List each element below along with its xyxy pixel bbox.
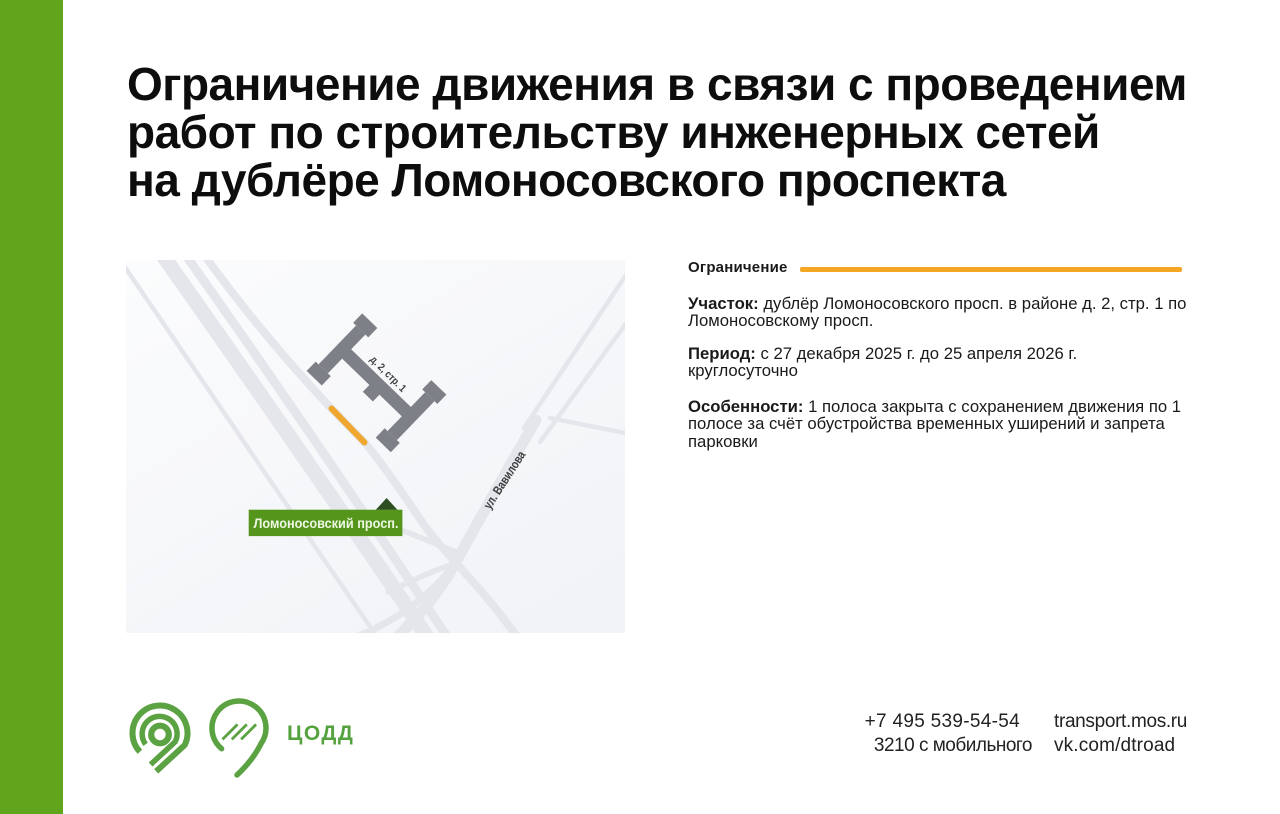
- svg-text:Ломоносовский просп.: Ломоносовский просп.: [254, 516, 399, 532]
